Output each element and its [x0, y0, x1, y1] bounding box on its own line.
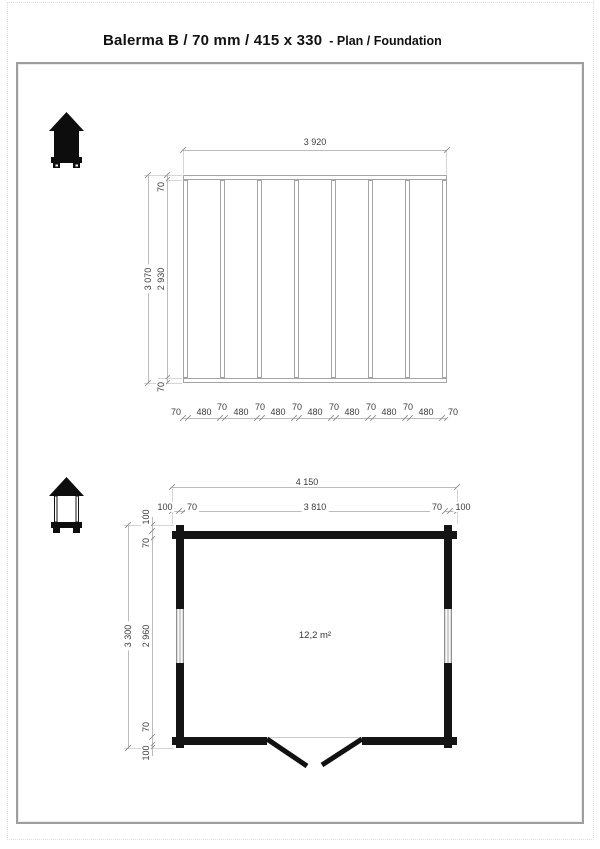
- dim-chain-label: 70: [169, 407, 183, 417]
- dim-floor-height-total: 3 300: [123, 622, 133, 651]
- dim-chain-label: 70: [215, 402, 229, 412]
- dim-floor-width-total: 4 150: [294, 477, 321, 487]
- dim-chain-label: 70: [327, 402, 341, 412]
- dim-chain-label: 480: [194, 407, 213, 417]
- dim-floor-side: 2 960: [141, 622, 151, 651]
- dim-chain-label: 70: [364, 402, 378, 412]
- dim-chain-label: 70: [446, 407, 460, 417]
- dim-chain-label: 480: [268, 407, 287, 417]
- dim-floor-side: 70: [141, 719, 151, 735]
- dim-floor-top: 100: [155, 502, 174, 512]
- dim-foundation-height-total: 3 070: [143, 265, 153, 294]
- floorplan-dimension-labels: 4 150 100 70 3 810 70 100 3 300 100 70 2…: [0, 0, 600, 849]
- dim-chain-label: 70: [401, 402, 415, 412]
- dim-foundation-side-mid: 2 930: [156, 265, 166, 294]
- dim-floor-top: 3 810: [302, 502, 329, 512]
- dim-foundation-side-top: 70: [156, 179, 166, 195]
- dim-floor-top: 70: [430, 502, 444, 512]
- dim-floor-side: 70: [141, 535, 151, 551]
- dim-floor-side: 100: [141, 742, 151, 763]
- dim-chain-label: 480: [379, 407, 398, 417]
- dim-foundation-width: 3 920: [302, 137, 329, 147]
- dim-chain-label: 70: [290, 402, 304, 412]
- dim-chain-label: 480: [416, 407, 435, 417]
- dim-floor-side: 100: [141, 506, 151, 527]
- dim-floor-top: 100: [453, 502, 472, 512]
- dim-foundation-side-bottom: 70: [156, 379, 166, 395]
- dim-chain-label: 480: [305, 407, 324, 417]
- dim-chain-label: 480: [231, 407, 250, 417]
- drawing-page: Balerma B / 70 mm / 415 x 330- Plan / Fo…: [0, 0, 600, 849]
- dim-floor-top: 70: [185, 502, 199, 512]
- dim-chain-label: 70: [253, 402, 267, 412]
- dim-chain-label: 480: [342, 407, 361, 417]
